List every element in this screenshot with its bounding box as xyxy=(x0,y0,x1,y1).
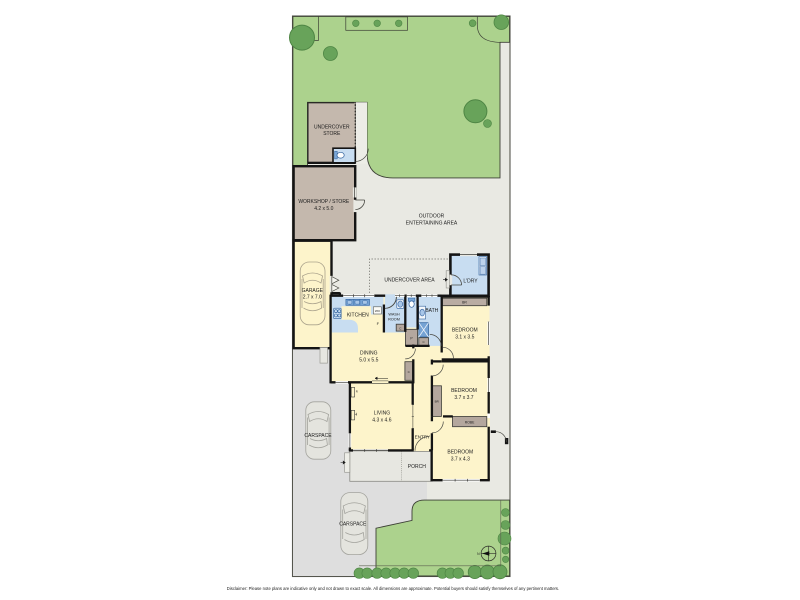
svg-text:BEDROOM: BEDROOM xyxy=(452,328,478,334)
svg-text:OUTDOOR: OUTDOOR xyxy=(419,214,445,220)
svg-text:4.3 x 4.6: 4.3 x 4.6 xyxy=(372,418,391,424)
svg-text:R: R xyxy=(356,390,358,394)
svg-text:L'DRY: L'DRY xyxy=(463,279,478,285)
svg-text:WO: WO xyxy=(375,309,381,313)
svg-text:3.7 x 3.7: 3.7 x 3.7 xyxy=(454,395,473,401)
svg-text:Disclaimer: Please note plans: Disclaimer: Please note plans are indica… xyxy=(227,586,559,591)
svg-text:LIVING: LIVING xyxy=(374,411,391,417)
svg-text:5.0 x 5.5: 5.0 x 5.5 xyxy=(359,358,378,364)
svg-text:CARSPACE: CARSPACE xyxy=(339,522,367,528)
svg-text:PORCH: PORCH xyxy=(408,464,426,470)
svg-text:BR: BR xyxy=(462,301,467,305)
svg-text:WASH: WASH xyxy=(388,313,400,317)
svg-text:KITCHEN: KITCHEN xyxy=(347,313,369,319)
svg-text:DINING: DINING xyxy=(360,351,378,357)
svg-text:3.1 x 3.5: 3.1 x 3.5 xyxy=(455,335,474,341)
svg-text:GARAGE: GARAGE xyxy=(302,288,324,294)
svg-text:2.7 x 7.0: 2.7 x 7.0 xyxy=(303,295,322,301)
svg-text:ENTERTAINING AREA: ENTERTAINING AREA xyxy=(406,221,458,227)
svg-text:ROBE: ROBE xyxy=(465,420,475,424)
svg-text:WORKSHOP / STORE: WORKSHOP / STORE xyxy=(298,199,350,205)
svg-text:ENTRY: ENTRY xyxy=(415,435,431,440)
svg-text:ROOM: ROOM xyxy=(388,317,400,321)
svg-text:BEDROOM: BEDROOM xyxy=(447,450,473,456)
svg-text:STORE: STORE xyxy=(323,131,341,137)
svg-text:UNDERCOVER AREA: UNDERCOVER AREA xyxy=(384,278,435,284)
svg-text:CARSPACE: CARSPACE xyxy=(304,433,332,439)
svg-text:4.2 x 5.0: 4.2 x 5.0 xyxy=(314,206,333,212)
svg-text:BATH: BATH xyxy=(425,308,438,314)
svg-text:3.7 x 4.3: 3.7 x 4.3 xyxy=(451,457,470,463)
svg-text:UNDERCOVER: UNDERCOVER xyxy=(314,125,350,131)
svg-text:BEDROOM: BEDROOM xyxy=(451,388,477,394)
